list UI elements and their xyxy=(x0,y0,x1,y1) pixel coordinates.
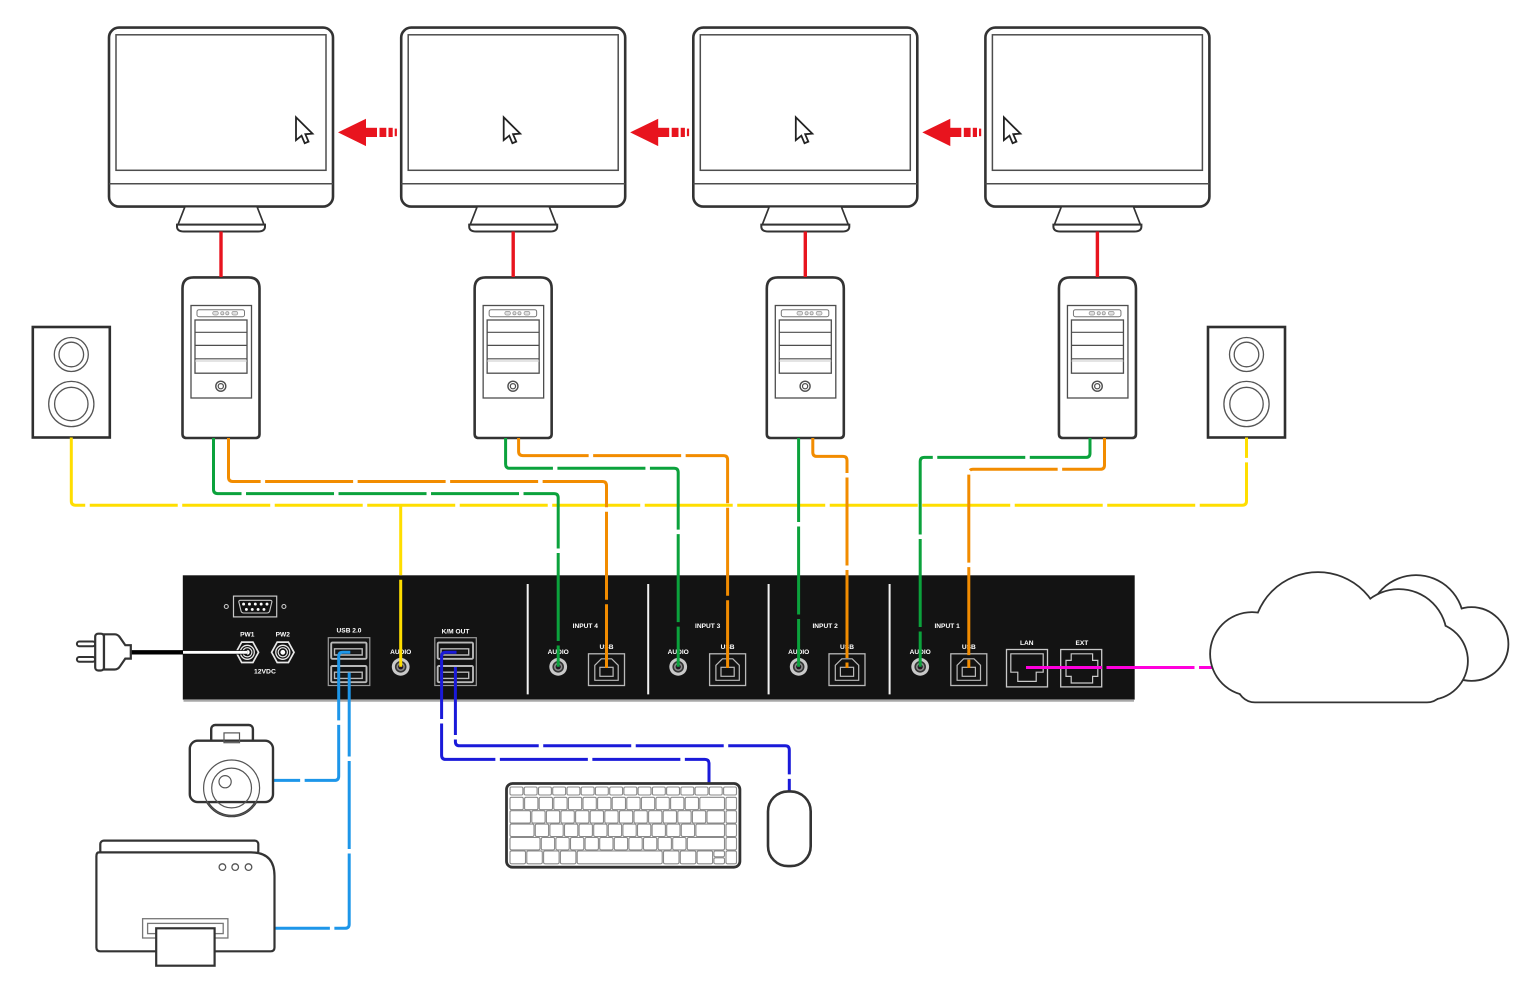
svg-text:USB 2.0: USB 2.0 xyxy=(337,628,362,635)
svg-text:LAN: LAN xyxy=(1020,640,1034,647)
svg-text:INPUT 4: INPUT 4 xyxy=(573,623,599,630)
svg-text:EXT: EXT xyxy=(1075,640,1088,647)
svg-text:INPUT 1: INPUT 1 xyxy=(934,623,960,630)
svg-text:PW1: PW1 xyxy=(240,632,255,639)
svg-text:K/M OUT: K/M OUT xyxy=(442,629,470,636)
svg-text:INPUT 2: INPUT 2 xyxy=(812,623,838,630)
svg-text:PW2: PW2 xyxy=(276,632,291,639)
svg-text:12VDC: 12VDC xyxy=(254,669,276,676)
svg-text:INPUT 3: INPUT 3 xyxy=(695,623,721,630)
